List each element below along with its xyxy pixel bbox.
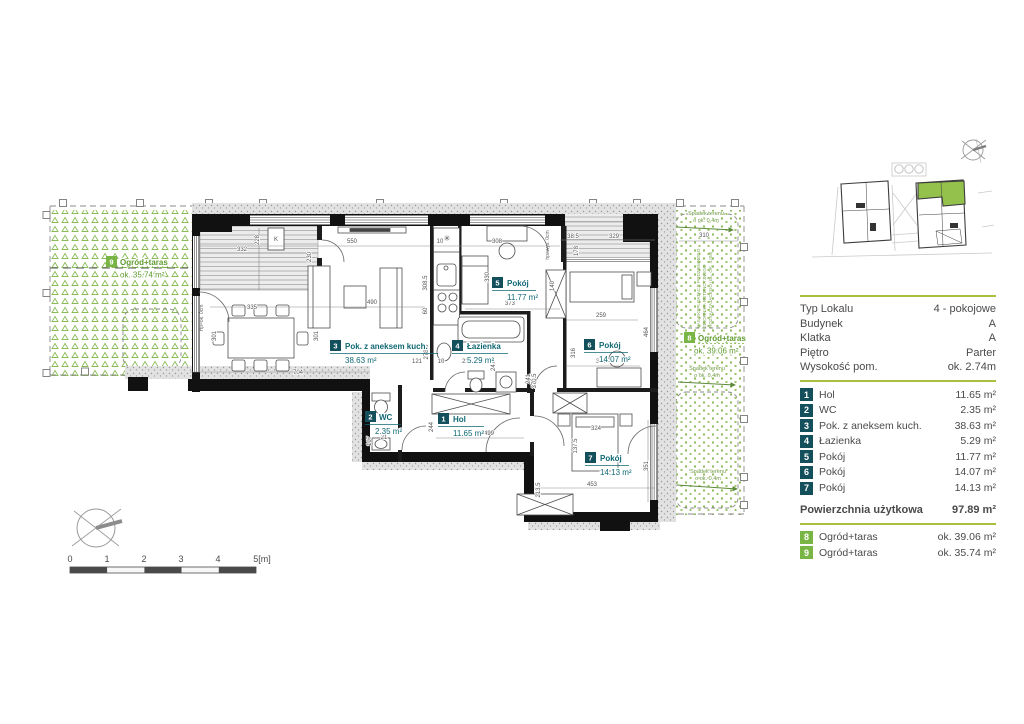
site-lines xyxy=(812,139,994,257)
scale-tick: 5[m] xyxy=(253,554,271,564)
room-label-hol: 1 Hol 11.65 m² xyxy=(438,413,484,438)
dim-label: 140 xyxy=(550,280,556,291)
room-number-badge: 7 xyxy=(800,482,813,495)
dining-table xyxy=(213,305,308,371)
svg-text:Spadek terenu: Spadek terenu xyxy=(690,469,726,475)
room6-door-arc xyxy=(535,366,557,388)
svg-text:38.63 m²: 38.63 m² xyxy=(345,356,377,365)
room-label-bathroom: 4 Łazienka 5.29 m² xyxy=(452,340,508,365)
dim-label: 301 xyxy=(314,330,320,341)
room-number-badge: 5 xyxy=(800,450,813,463)
garden-area: ok. 35.74 m² xyxy=(938,547,996,559)
dim-label: 704 xyxy=(293,370,304,376)
hall-wardrobe xyxy=(432,394,510,414)
room-name: Hol xyxy=(819,389,835,401)
dim-label: 330 xyxy=(485,271,491,282)
outdoor-row: 9Ogród+tarasok. 35.74 m² xyxy=(800,546,996,559)
room-number-badge: 6 xyxy=(800,466,813,479)
info-value: Parter xyxy=(966,347,996,359)
room-label-wc: 2 WC 2.35 m² xyxy=(365,411,402,436)
wardrobe xyxy=(546,270,566,318)
garden-name: Ogród+taras xyxy=(819,531,878,543)
dim-label: 60 xyxy=(423,307,429,314)
window-east-1 xyxy=(651,288,658,352)
svg-text:ZBIORNIKA RETENCYJNEGO: ZBIORNIKA RETENCYJNEGO xyxy=(702,264,707,328)
svg-text:5.29 m²: 5.29 m² xyxy=(467,356,494,365)
room-area: 11.65 m² xyxy=(955,389,996,401)
dim-label: 464 xyxy=(644,326,650,337)
info-row-klatka: KlatkaA xyxy=(800,332,996,344)
dim-label: 107 xyxy=(367,435,373,446)
svg-text:Spadek terenu: Spadek terenu xyxy=(689,366,725,372)
dim-label: 490 xyxy=(367,300,378,306)
svg-text:ok. 39.06 m²: ok. 39.06 m² xyxy=(694,347,739,356)
dim-label: 335 xyxy=(247,305,258,311)
room-row: 4Łazienka5.29 m² xyxy=(800,435,996,448)
svg-text:7: 7 xyxy=(588,453,592,462)
window-west-1 xyxy=(193,236,200,288)
scale-tick: 4 xyxy=(215,554,220,564)
svg-text:11.65 m²: 11.65 m² xyxy=(453,429,484,438)
dim-label: 10 xyxy=(438,359,445,365)
dim-label: 499 xyxy=(484,431,495,437)
building-a-left xyxy=(841,181,891,243)
room-area: 5.29 m² xyxy=(960,435,996,447)
bath-door-arc xyxy=(445,372,465,392)
window-top-2 xyxy=(345,216,428,225)
info-value: ok. 2.74m xyxy=(948,361,996,373)
svg-text:PAS EKSPLOATACJI PODZIEMNEGO: PAS EKSPLOATACJI PODZIEMNEGO xyxy=(696,248,701,328)
parapet-note: hp=wys. 0cm xyxy=(545,230,551,259)
room-number-badge: 2 xyxy=(800,404,813,417)
room-row: 3Pok. z aneksem kuch.38.63 m² xyxy=(800,419,996,432)
room-label-room5: 5 Pokój 11.77 m² xyxy=(492,277,538,302)
dim-label: 324 xyxy=(591,426,602,432)
svg-text:Pokój: Pokój xyxy=(599,341,621,350)
garden-9-area xyxy=(50,210,192,376)
svg-text:1: 1 xyxy=(441,414,445,423)
window-top-1 xyxy=(250,216,330,225)
room6-furniture xyxy=(546,270,651,387)
minimap-compass xyxy=(961,140,986,160)
info-label: Piętro xyxy=(800,347,829,359)
svg-text:11.77 m²: 11.77 m² xyxy=(507,293,538,302)
room-row: 7Pokój14.13 m² xyxy=(800,482,996,495)
svg-text:9: 9 xyxy=(109,257,113,266)
room-name: Pokój xyxy=(819,451,845,463)
scale-tick: 3 xyxy=(178,554,183,564)
garden-number-badge: 9 xyxy=(800,546,813,559)
info-row-pietro: PiętroParter xyxy=(800,347,996,359)
terrace-box-label: K xyxy=(274,237,278,243)
dim-label: 244 xyxy=(429,421,435,432)
dim-label: 228 xyxy=(255,234,261,245)
room-area: 14.13 m² xyxy=(955,482,996,494)
dim-label: 213.5 xyxy=(536,482,542,498)
svg-text:o ok. 0,4m: o ok. 0,4m xyxy=(695,476,721,482)
svg-text:8: 8 xyxy=(687,333,691,342)
garden-number-badge: 8 xyxy=(800,531,813,544)
dim-label: 259 xyxy=(596,313,607,319)
room-row: 5Pokój11.77 m² xyxy=(800,450,996,463)
svg-text:Hol: Hol xyxy=(453,415,466,424)
dim-label: 351 xyxy=(644,460,650,471)
svg-text:WC: WC xyxy=(379,413,393,422)
dim-label: 230 xyxy=(307,251,313,262)
room-name: Pokój xyxy=(819,482,845,494)
room-row: 2WC2.35 m² xyxy=(800,404,996,417)
toilet xyxy=(372,393,390,414)
room-area: 14.07 m² xyxy=(955,466,996,478)
wardrobe xyxy=(517,494,573,515)
room-area: 11.77 m² xyxy=(955,451,996,463)
svg-text:Pokój: Pokój xyxy=(600,454,622,463)
dim-label: 370.5 xyxy=(532,373,538,389)
separator-line xyxy=(800,380,996,382)
nightstand xyxy=(558,414,570,426)
svg-text:o ok. 0,4m: o ok. 0,4m xyxy=(693,218,719,224)
window-top-3 xyxy=(470,216,545,225)
dim-label: 178 xyxy=(574,245,580,256)
scale-bar: 0 1 2 3 4 5[m] xyxy=(67,554,270,573)
site-minimap xyxy=(800,135,996,283)
tv-cabinet xyxy=(338,227,406,233)
room7-furniture xyxy=(517,414,632,515)
svg-text:Ogród+taras: Ogród+taras xyxy=(698,334,746,343)
fridge-icon: ✳ xyxy=(444,234,451,243)
room-number-badge: 3 xyxy=(800,419,813,432)
compass-rose xyxy=(72,509,122,547)
building-a-right xyxy=(916,180,966,248)
separator-line xyxy=(800,295,996,297)
garden-name: Ogród+taras xyxy=(819,547,878,559)
desk xyxy=(597,368,641,387)
washing-machine xyxy=(496,372,516,392)
svg-text:6: 6 xyxy=(587,340,591,349)
info-value: A xyxy=(989,318,996,330)
info-label: Budynek xyxy=(800,318,843,330)
scale-tick: 0 xyxy=(67,554,72,564)
room-name: WC xyxy=(819,404,837,416)
info-label: Typ Lokalu xyxy=(800,303,853,315)
svg-text:Pokój: Pokój xyxy=(507,279,529,288)
unit-info-panel: Typ Lokalu4 - pokojowe BudynekA KlatkaA … xyxy=(800,135,996,562)
dim-label: 38.5 xyxy=(567,234,579,240)
room-name: Pokój xyxy=(819,466,845,478)
parapet-note: Hp=ok. 0cm xyxy=(199,305,205,332)
info-row-budynek: BudynekA xyxy=(800,318,996,330)
dim-label: 301 xyxy=(212,330,218,341)
svg-text:o ok. 0,4m: o ok. 0,4m xyxy=(694,373,720,379)
coffee-table xyxy=(344,286,366,308)
room-name: Łazienka xyxy=(819,435,861,447)
dim-label: 453 xyxy=(587,482,598,488)
driveway-circles xyxy=(895,165,923,173)
terrace-door-arc xyxy=(322,240,344,262)
room-area: 2.35 m² xyxy=(960,404,996,416)
nightstand xyxy=(620,414,632,426)
room-row: 1Hol11.65 m² xyxy=(800,388,996,401)
svg-text:Spadek terenu: Spadek terenu xyxy=(688,211,724,217)
svg-text:2.35 m²: 2.35 m² xyxy=(375,427,402,436)
svg-text:5: 5 xyxy=(495,278,499,287)
total-area-row: Powierzchnia użytkowa97.89 m² xyxy=(800,504,996,516)
room-name: Pok. z aneksem kuch. xyxy=(819,420,922,432)
dim-label: 329 xyxy=(609,234,620,240)
window-room6-terrace xyxy=(565,258,650,263)
info-row-wysokosc: Wysokość pom.ok. 2.74m xyxy=(800,361,996,373)
chair xyxy=(499,243,515,259)
svg-text:14.13 m²: 14.13 m² xyxy=(600,468,632,477)
svg-text:ok. 35.74 m²: ok. 35.74 m² xyxy=(120,271,165,280)
svg-text:14.07 m²: 14.07 m² xyxy=(599,355,631,364)
sofa-left xyxy=(308,266,330,328)
dim-label: 121 xyxy=(412,359,423,365)
svg-text:Łazienka: Łazienka xyxy=(467,342,501,351)
total-label: Powierzchnia użytkowa xyxy=(800,504,923,516)
dim-label: 332 xyxy=(237,247,248,253)
dim-label: 310 xyxy=(699,233,710,239)
sofa-right xyxy=(380,268,402,328)
dim-label: 550 xyxy=(347,239,358,245)
bathroom-fixtures xyxy=(437,317,524,392)
dim-label: 316 xyxy=(571,347,577,358)
room-area: 38.63 m² xyxy=(955,420,996,432)
svg-text:Pok. z aneksem kuch.: Pok. z aneksem kuch. xyxy=(345,342,428,351)
svg-text:Ogród+taras: Ogród+taras xyxy=(120,258,168,267)
info-row-typ: Typ Lokalu4 - pokojowe xyxy=(800,303,996,315)
room-label-room6: 6 Pokój 14.07 m² xyxy=(584,339,631,364)
scale-tick: 1 xyxy=(104,554,109,564)
dim-label: 308 xyxy=(492,239,503,245)
room-number-badge: 1 xyxy=(800,388,813,401)
svg-text:3: 3 xyxy=(333,341,337,350)
info-label: Wysokość pom. xyxy=(800,361,878,373)
scale-tick: 2 xyxy=(141,554,146,564)
info-value: 4 - pokojowe xyxy=(934,303,996,315)
wc-door-arc xyxy=(402,426,426,450)
info-label: Klatka xyxy=(800,332,831,344)
svg-text:ROZSĄCZAJĄCEGO (GŁ. OK. 4,0M): ROZSĄCZAJĄCEGO (GŁ. OK. 4,0M) xyxy=(708,251,713,328)
svg-text:2: 2 xyxy=(368,412,372,421)
separator-line xyxy=(800,523,996,525)
room-row: 6Pokój14.07 m² xyxy=(800,466,996,479)
room-number-badge: 4 xyxy=(800,435,813,448)
nightstand xyxy=(637,272,651,286)
window-east-2 xyxy=(651,424,658,500)
garden-area: ok. 39.06 m² xyxy=(938,531,996,543)
dim-label: 137.5 xyxy=(573,438,579,454)
total-value: 97.89 m² xyxy=(952,504,996,516)
floorplan-page: { "panel": { "info": [ {"label": "Typ Lo… xyxy=(0,0,1024,724)
info-value: A xyxy=(989,332,996,344)
outdoor-row: 8Ogród+tarasok. 39.06 m² xyxy=(800,531,996,544)
dim-label: 308.5 xyxy=(423,275,429,291)
entry-wardrobe xyxy=(553,393,587,413)
